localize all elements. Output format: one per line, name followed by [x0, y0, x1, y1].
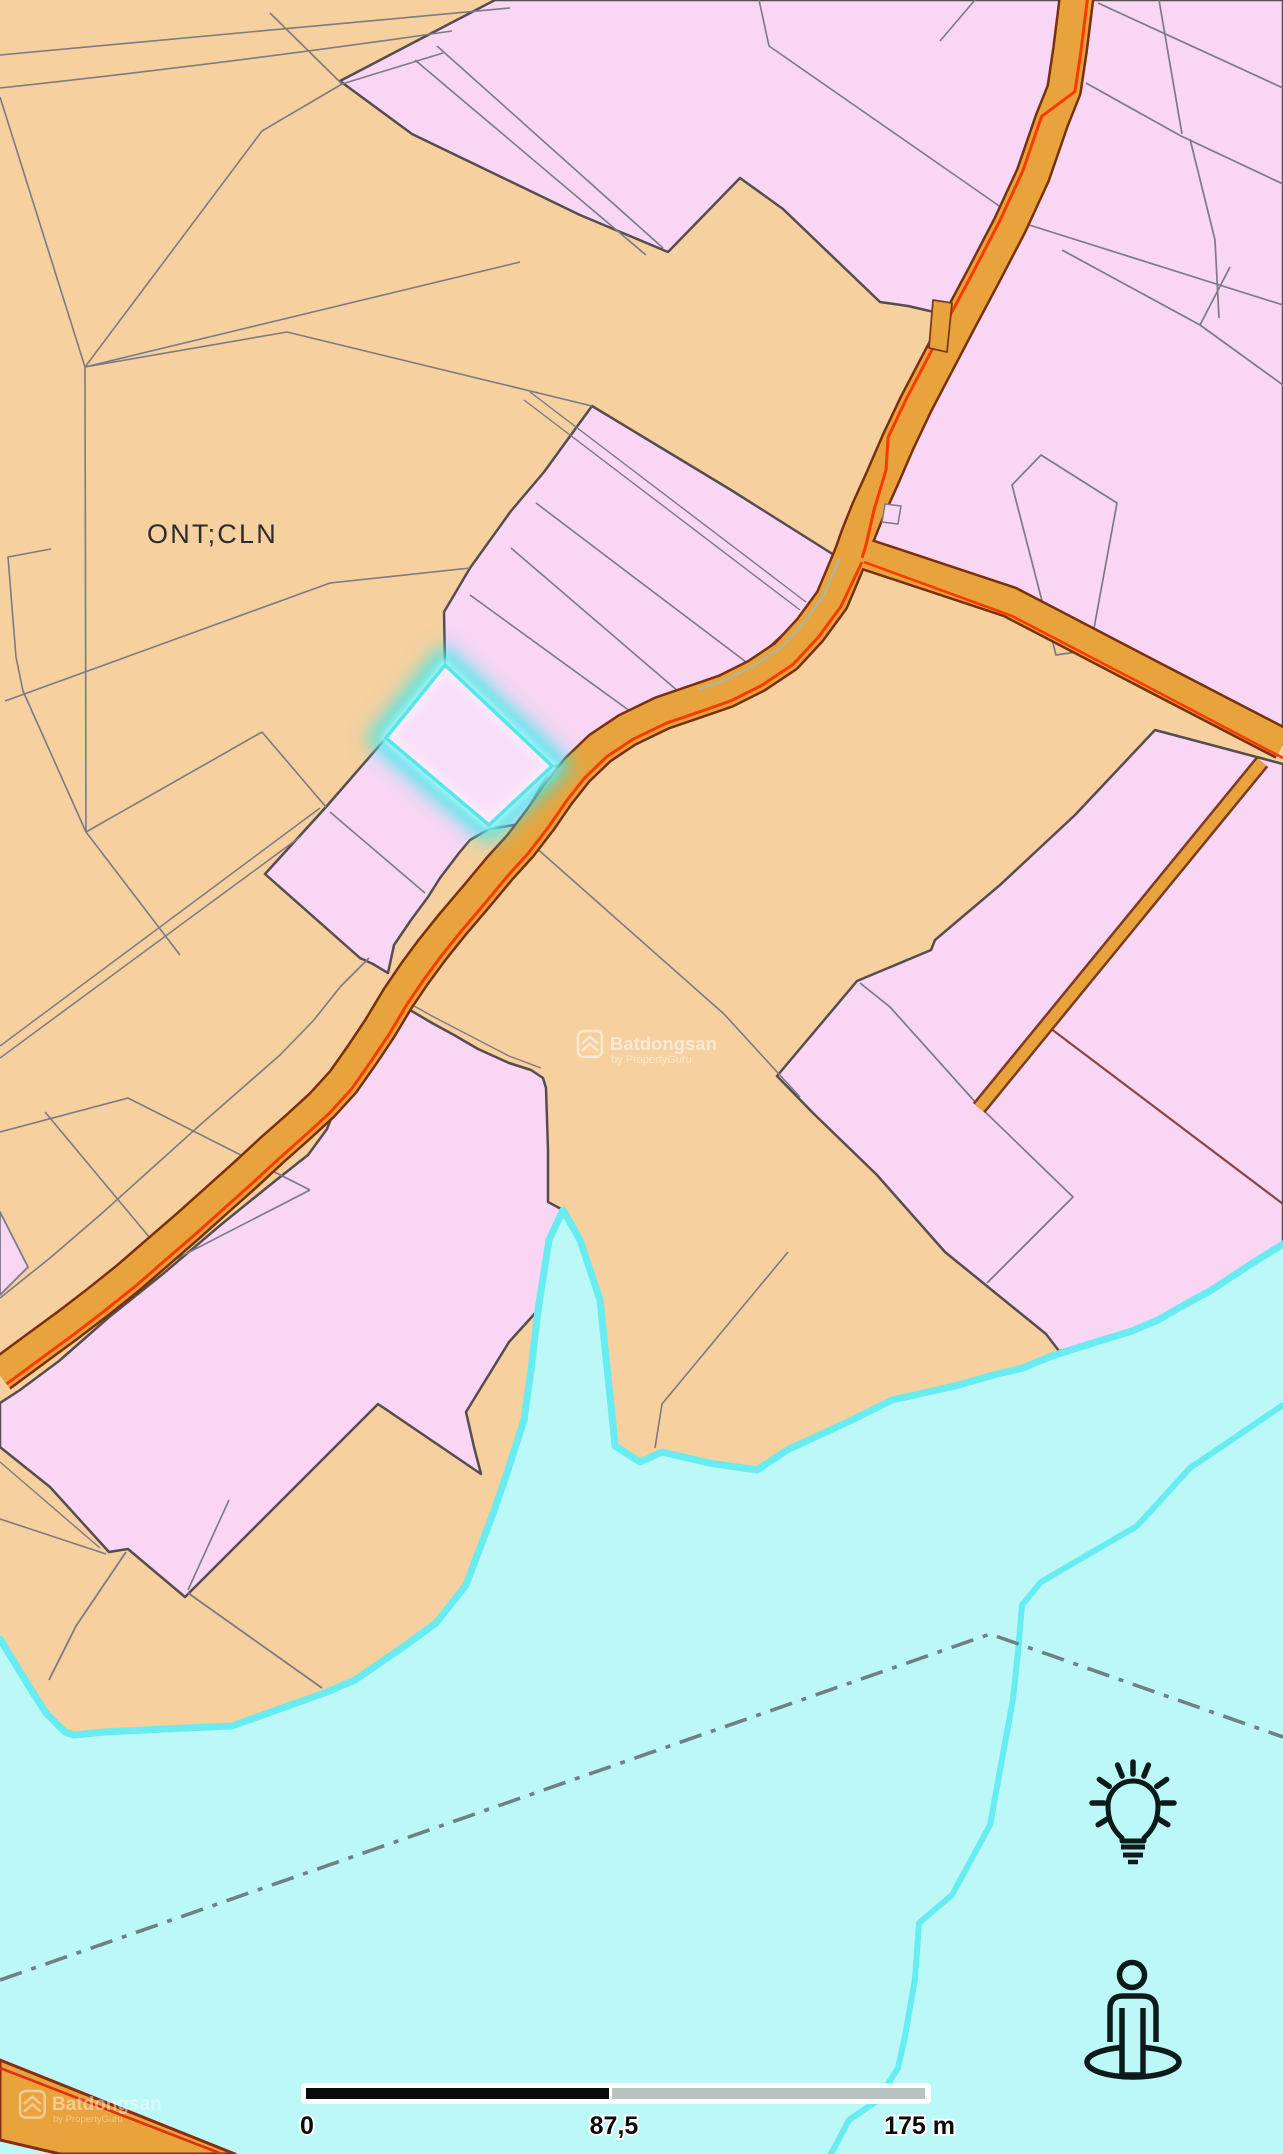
- svg-text:by PropertyGuru: by PropertyGuru: [611, 1054, 692, 1066]
- svg-text:87,5: 87,5: [590, 2112, 639, 2140]
- svg-text:175 m: 175 m: [884, 2112, 955, 2140]
- svg-text:by PropertyGuru: by PropertyGuru: [53, 2114, 123, 2125]
- svg-text:0: 0: [300, 2112, 314, 2140]
- svg-text:Batdongsan: Batdongsan: [52, 2094, 162, 2115]
- svg-text:ONT;CLN: ONT;CLN: [147, 519, 278, 549]
- svg-text:Batdongsan: Batdongsan: [610, 1033, 717, 1054]
